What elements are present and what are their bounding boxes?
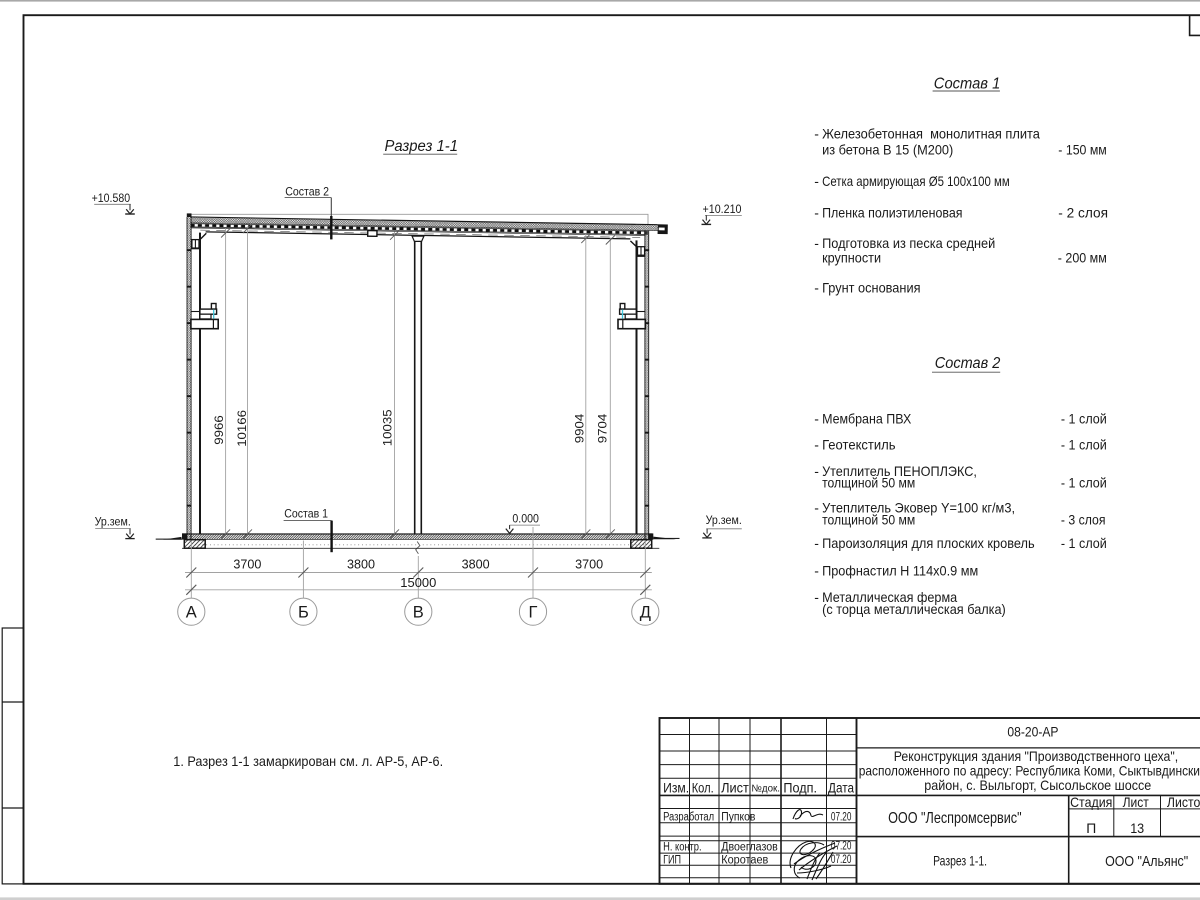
svg-text:Коротаев: Коротаев	[721, 854, 768, 866]
svg-text:расположенного по адресу: Респ: расположенного по адресу: Республика Ком…	[859, 762, 1200, 778]
svg-text:13: 13	[1130, 820, 1144, 836]
svg-text:3700: 3700	[575, 558, 603, 572]
svg-text:3800: 3800	[462, 558, 490, 572]
svg-text:толщиной 50 мм: толщиной 50 мм	[822, 511, 915, 527]
svg-text:ООО "Альянс": ООО "Альянс"	[1105, 854, 1188, 870]
svg-text:Изм.: Изм.	[663, 780, 689, 795]
svg-text:3800: 3800	[347, 558, 375, 572]
svg-text:07.20: 07.20	[831, 841, 852, 853]
svg-text:Разрез 1-1.: Разрез 1-1.	[933, 852, 987, 868]
svg-text:10166: 10166	[235, 410, 249, 447]
svg-text:0.000: 0.000	[512, 514, 539, 526]
svg-text:Стадия: Стадия	[1070, 794, 1112, 810]
svg-text:08-20-АР: 08-20-АР	[1007, 724, 1058, 740]
svg-text:- 1 слой: - 1 слой	[1061, 437, 1107, 453]
svg-text:9704: 9704	[595, 413, 609, 443]
svg-text:Лист: Лист	[721, 780, 749, 795]
svg-text:-: -	[814, 280, 819, 296]
svg-text:Подп.: Подп.	[783, 780, 817, 795]
svg-text:+10.210: +10.210	[703, 204, 742, 216]
svg-text:Состав 1: Состав 1	[934, 75, 1001, 92]
svg-text:ООО "Леспромсервис": ООО "Леспромсервис"	[888, 810, 1022, 827]
svg-text:Лист: Лист	[1123, 794, 1150, 810]
svg-text:Грунт основания: Грунт основания	[822, 280, 920, 296]
svg-text:- 2 слоя: - 2 слоя	[1058, 205, 1108, 221]
svg-text:Б: Б	[298, 604, 309, 622]
svg-text:№док.: №док.	[751, 784, 780, 795]
svg-text:Пупков: Пупков	[721, 811, 755, 823]
svg-text:А: А	[186, 604, 197, 622]
svg-text:15000: 15000	[400, 576, 436, 590]
svg-text:-: -	[814, 410, 819, 426]
svg-text:Геотекстиль: Геотекстиль	[822, 437, 896, 453]
svg-text:Сетка армирующая Ø5 100х100 мм: Сетка армирующая Ø5 100х100 мм	[822, 173, 1010, 189]
svg-text:район, с. Выльгорт, Сысольское: район, с. Выльгорт, Сысольское шоссе	[924, 777, 1151, 793]
svg-text:Кол.: Кол.	[692, 780, 714, 795]
svg-text:Состав 1: Состав 1	[284, 507, 328, 521]
svg-text:-: -	[814, 205, 819, 221]
svg-text:П: П	[1086, 820, 1096, 836]
svg-text:1. Разрез 1-1 замаркирован см.: 1. Разрез 1-1 замаркирован см. л. АР-5, …	[173, 753, 443, 769]
svg-text:- 200 мм: - 200 мм	[1058, 250, 1107, 266]
svg-text:-: -	[814, 500, 819, 516]
svg-text:-: -	[814, 173, 819, 189]
svg-text:-: -	[814, 235, 819, 251]
svg-text:Двоеглазов: Двоеглазов	[721, 841, 778, 853]
svg-text:07.20: 07.20	[831, 811, 852, 823]
svg-text:Разработал: Разработал	[663, 811, 714, 823]
svg-text:9904: 9904	[573, 413, 587, 443]
svg-text:Ур.зем.: Ур.зем.	[95, 516, 131, 528]
svg-text:-: -	[814, 463, 819, 479]
svg-text:- 1 слой: - 1 слой	[1061, 410, 1107, 426]
svg-text:- 1 слой: - 1 слой	[1061, 535, 1107, 551]
svg-text:9966: 9966	[212, 415, 226, 445]
svg-text:Состав 2: Состав 2	[285, 185, 329, 199]
svg-text:- 1 слой: - 1 слой	[1061, 475, 1107, 491]
svg-text:-: -	[814, 125, 819, 141]
svg-text:Д: Д	[640, 604, 651, 622]
svg-text:3700: 3700	[233, 558, 261, 572]
svg-text:ГИП: ГИП	[663, 854, 681, 866]
svg-text:крупности: крупности	[822, 250, 881, 266]
svg-text:-: -	[814, 563, 819, 579]
svg-text:-: -	[814, 589, 819, 605]
svg-text:(с торца металлическая балка): (с торца металлическая балка)	[822, 601, 1006, 617]
svg-text:Железобетонная монолитная пли: Железобетонная монолитная плита	[822, 125, 1040, 141]
svg-text:Пароизоляция для плоских крове: Пароизоляция для плоских кровель	[822, 535, 1035, 551]
svg-text:Г: Г	[529, 604, 538, 622]
svg-text:- 150 мм: - 150 мм	[1058, 142, 1107, 158]
svg-text:Листов: Листов	[1167, 794, 1200, 810]
svg-text:Н. контр.: Н. контр.	[663, 841, 702, 853]
svg-text:-: -	[814, 437, 819, 453]
svg-text:Профнастил Н 114х0.9 мм: Профнастил Н 114х0.9 мм	[822, 563, 978, 579]
svg-text:-: -	[814, 535, 819, 551]
svg-text:из бетона В 15 (М200): из бетона В 15 (М200)	[822, 142, 953, 158]
svg-text:толщиной 50 мм: толщиной 50 мм	[822, 475, 915, 491]
svg-text:- 3 слоя: - 3 слоя	[1061, 511, 1106, 527]
svg-text:Пленка полиэтиленовая: Пленка полиэтиленовая	[822, 205, 962, 221]
svg-text:07.20: 07.20	[831, 854, 852, 866]
svg-text:10035: 10035	[380, 409, 394, 446]
svg-text:+10.580: +10.580	[92, 193, 131, 205]
svg-text:Мембрана ПВХ: Мембрана ПВХ	[822, 410, 912, 426]
svg-text:Дата: Дата	[828, 780, 854, 795]
svg-text:Ур.зем.: Ур.зем.	[706, 515, 742, 527]
svg-text:Состав 2: Состав 2	[935, 355, 1001, 372]
svg-text:В: В	[413, 604, 424, 622]
svg-text:Разрез 1-1: Разрез 1-1	[385, 138, 459, 155]
